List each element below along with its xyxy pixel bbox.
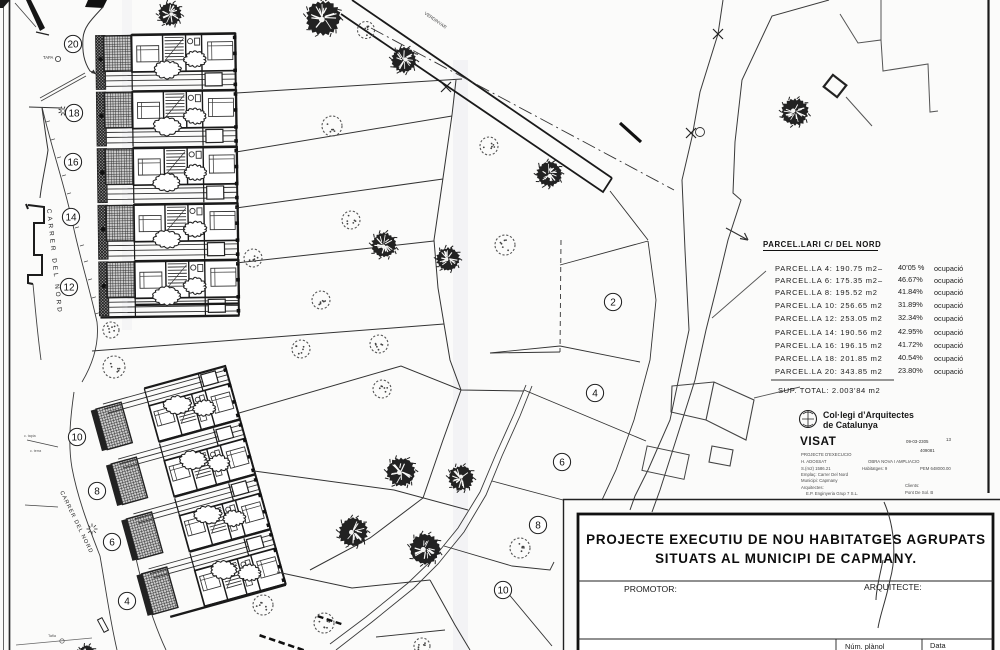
svg-text:PROMOTOR:: PROMOTOR: bbox=[624, 584, 677, 594]
svg-text:4: 4 bbox=[592, 389, 598, 400]
svg-text:ocupació: ocupació bbox=[934, 341, 963, 350]
svg-text:13: 13 bbox=[946, 437, 951, 442]
svg-text:ARQUITECTE:: ARQUITECTE: bbox=[864, 582, 922, 592]
svg-text:PARCEL.LA 12: 253.05 m2: PARCEL.LA 12: 253.05 m2 bbox=[775, 314, 883, 323]
svg-text:4: 4 bbox=[124, 597, 130, 608]
svg-text:12: 12 bbox=[63, 283, 75, 294]
svg-text:42.95%: 42.95% bbox=[898, 327, 923, 336]
svg-text:OBRA NOVA I AMPLIACIO: OBRA NOVA I AMPLIACIO bbox=[868, 459, 920, 464]
svg-text:14: 14 bbox=[65, 213, 77, 224]
svg-text:ocupació: ocupació bbox=[934, 367, 963, 376]
svg-text:PARCEL.LA 6: 175.35 m2: PARCEL.LA 6: 175.35 m2 bbox=[775, 276, 878, 285]
svg-text:de Catalunya: de Catalunya bbox=[823, 420, 878, 430]
svg-text:c. terra: c. terra bbox=[30, 449, 41, 453]
svg-text:ocupació: ocupació bbox=[934, 288, 963, 297]
svg-text:40.54%: 40.54% bbox=[898, 353, 923, 362]
svg-text:46.67%: 46.67% bbox=[898, 275, 923, 284]
svg-text:VISAT: VISAT bbox=[800, 434, 837, 448]
svg-text:Núm. plànol: Núm. plànol bbox=[845, 642, 885, 650]
svg-text:Habitatges: 9: Habitatges: 9 bbox=[862, 466, 888, 471]
svg-text:H. ADOSSAT: H. ADOSSAT bbox=[801, 459, 827, 464]
svg-text:09-03-2305: 09-03-2305 bbox=[906, 439, 929, 444]
svg-text:2: 2 bbox=[610, 298, 616, 309]
svg-text:SITUATS AL MUNICIPI DE CAPMANY: SITUATS AL MUNICIPI DE CAPMANY. bbox=[655, 551, 917, 566]
svg-text:TAPA: TAPA bbox=[43, 55, 54, 60]
svg-text:PARCEL.LA 16: 196.15 m2: PARCEL.LA 16: 196.15 m2 bbox=[775, 341, 883, 350]
svg-text:40’05 %: 40’05 % bbox=[898, 263, 925, 272]
svg-text:32.34%: 32.34% bbox=[898, 313, 923, 322]
svg-text:8: 8 bbox=[535, 521, 541, 532]
svg-text:Tafla: Tafla bbox=[48, 634, 57, 638]
svg-text:ocupació: ocupació bbox=[934, 276, 963, 285]
svg-text:Data: Data bbox=[930, 641, 947, 650]
svg-text:ocupació: ocupació bbox=[934, 354, 963, 363]
svg-text:31.89%: 31.89% bbox=[898, 300, 923, 309]
svg-text:Emplaç: Carrer Del Nord: Emplaç: Carrer Del Nord bbox=[801, 472, 849, 477]
svg-text:8: 8 bbox=[94, 487, 100, 498]
svg-text:Arquitectes:: Arquitectes: bbox=[801, 485, 824, 490]
svg-text:6: 6 bbox=[559, 458, 565, 469]
svg-text:PARCEL.LA 10: 256.65 m2: PARCEL.LA 10: 256.65 m2 bbox=[775, 301, 883, 310]
svg-text:Municipi: Capmany: Municipi: Capmany bbox=[801, 478, 838, 483]
svg-text:Clients:: Clients: bbox=[905, 483, 919, 488]
svg-text:41.84%: 41.84% bbox=[898, 287, 923, 296]
svg-text:c. tapia: c. tapia bbox=[24, 434, 36, 438]
svg-text:23.80%: 23.80% bbox=[898, 366, 923, 375]
svg-text:PEM 648000.00: PEM 648000.00 bbox=[920, 466, 951, 471]
svg-text:10: 10 bbox=[497, 586, 509, 597]
svg-text:Pont De Sol. B: Pont De Sol. B bbox=[905, 490, 933, 495]
svg-text:ocupació: ocupació bbox=[934, 328, 963, 337]
svg-text:18: 18 bbox=[68, 109, 80, 120]
svg-text:E.P. Enginyeria Grup 7 S.L.: E.P. Enginyeria Grup 7 S.L. bbox=[806, 491, 858, 496]
svg-text:PARCEL.LA 18: 201.85 m2: PARCEL.LA 18: 201.85 m2 bbox=[775, 354, 883, 363]
svg-text:SUP. TOTAL: 2.003’84 m2: SUP. TOTAL: 2.003’84 m2 bbox=[778, 386, 880, 395]
svg-text:PARCEL.LARI C/ DEL NORD: PARCEL.LARI C/ DEL NORD bbox=[763, 240, 881, 249]
svg-text:409081: 409081 bbox=[920, 448, 935, 453]
svg-text:PARCEL.LA 14: 190.56 m2: PARCEL.LA 14: 190.56 m2 bbox=[775, 328, 883, 337]
svg-text:16: 16 bbox=[67, 158, 79, 169]
svg-text:ocupació: ocupació bbox=[934, 301, 963, 310]
svg-text:10: 10 bbox=[71, 433, 83, 444]
svg-text:41.72%: 41.72% bbox=[898, 340, 923, 349]
svg-text:ocupació: ocupació bbox=[934, 314, 963, 323]
svg-text:PARCEL.LA 4: 190.75 m2: PARCEL.LA 4: 190.75 m2 bbox=[775, 264, 878, 273]
svg-text:6: 6 bbox=[109, 538, 115, 549]
svg-text:PROJECTE EXECUTIU DE NOU HABIT: PROJECTE EXECUTIU DE NOU HABITATGES AGRU… bbox=[586, 532, 986, 547]
svg-text:S.(m2) 1586.21: S.(m2) 1586.21 bbox=[801, 466, 831, 471]
svg-text:PROJECTE D'EXECUCIO: PROJECTE D'EXECUCIO bbox=[801, 452, 852, 457]
svg-text:ocupació: ocupació bbox=[934, 264, 963, 273]
svg-text:Col·legi d’Arquitectes: Col·legi d’Arquitectes bbox=[823, 410, 914, 420]
svg-text:PARCEL.LA 8: 195.52 m2: PARCEL.LA 8: 195.52 m2 bbox=[775, 288, 878, 297]
svg-text:PARCEL.LA 20: 343.85 m2: PARCEL.LA 20: 343.85 m2 bbox=[775, 367, 883, 376]
svg-text:20: 20 bbox=[67, 40, 79, 51]
